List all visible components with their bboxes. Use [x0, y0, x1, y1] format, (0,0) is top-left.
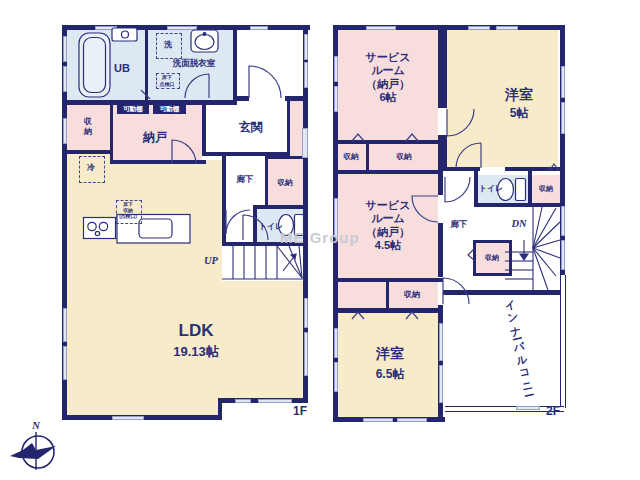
closet-door-mark	[468, 249, 474, 260]
fold-door-mark	[406, 312, 418, 319]
room-size-yoshitsu5: 5帖	[510, 106, 529, 121]
service45-door-arc	[412, 196, 438, 222]
nando-door-arc	[172, 140, 196, 164]
room-label-corridor-1f: 廊下	[237, 174, 254, 185]
floor-tag-2f: 2F	[546, 404, 560, 419]
room-label-closet-toilet: 収納	[539, 185, 553, 194]
fold-door-mark	[352, 312, 364, 319]
front-door-arc	[249, 66, 281, 98]
fold-door-mark	[549, 164, 559, 171]
room-label-service45: サービス ルーム （納戸） 4.5帖	[366, 199, 411, 253]
label-floor-hatch: 床下 点検口	[160, 74, 175, 87]
room-label-closet-hall: 収納	[278, 178, 293, 187]
room-label-yoshitsu5: 洋室	[505, 86, 533, 104]
room-size-yoshitsu65: 6.5帖	[376, 367, 405, 382]
compass-north-label: N	[32, 419, 40, 433]
ldk-door-arc	[226, 210, 250, 234]
room-label-ldk: LDK	[179, 320, 214, 341]
ub-sink	[112, 28, 137, 41]
room-label-ub: UB	[114, 62, 130, 76]
toilet2f-door-arc	[445, 177, 470, 202]
room-size-ldk: 19.13帖	[173, 344, 219, 360]
room-label-washroom: 洗面脱衣室	[173, 58, 216, 69]
room-label-toilet-2f: トイレ	[479, 184, 504, 194]
stairs-2f	[505, 203, 560, 290]
room-label-closet-a: 収納	[344, 152, 359, 161]
label-stairs-up: UP	[204, 254, 218, 267]
label-stairs-dn: DN	[511, 217, 526, 230]
room-label-nando: 納戸	[143, 130, 167, 145]
room-label-closet-stairs: 収納	[485, 254, 499, 263]
room-label-yoshitsu65: 洋室	[376, 345, 404, 363]
service6-door-arc	[447, 109, 474, 136]
room-label-closet-south: 収納	[404, 290, 420, 300]
room-label-corridor-2f: 廊下	[451, 219, 468, 230]
washbasin-tap	[203, 33, 206, 36]
room-label-closet-b: 収納	[397, 152, 412, 161]
floor-tag-1f: 1F	[293, 404, 307, 419]
stairs-1f	[222, 246, 305, 279]
fold-door-mark	[406, 134, 418, 141]
room-label-genkan: 玄関	[239, 120, 263, 135]
label-floor-storage: 床下 収納 (点検口)	[119, 202, 137, 221]
label-fridge: 冷	[87, 163, 95, 173]
toilet-tank-2f	[516, 179, 526, 201]
fold-door-mark	[352, 134, 364, 141]
compass-icon	[10, 432, 56, 470]
washroom-door-arc	[185, 74, 209, 98]
yoshitsu65-door-arc	[443, 278, 469, 304]
watermark: ME Group	[280, 229, 360, 246]
room-label-closet-west: 収 納	[84, 117, 92, 137]
room-label-service6: サービス ルーム （納戸） 6帖	[366, 51, 411, 105]
yoshitsu5-door-arc	[456, 143, 481, 168]
label-laundry: 洗	[164, 40, 172, 50]
floor-plan-canvas: 可動棚 可動棚	[0, 0, 640, 480]
ub-door-mark	[141, 90, 150, 99]
